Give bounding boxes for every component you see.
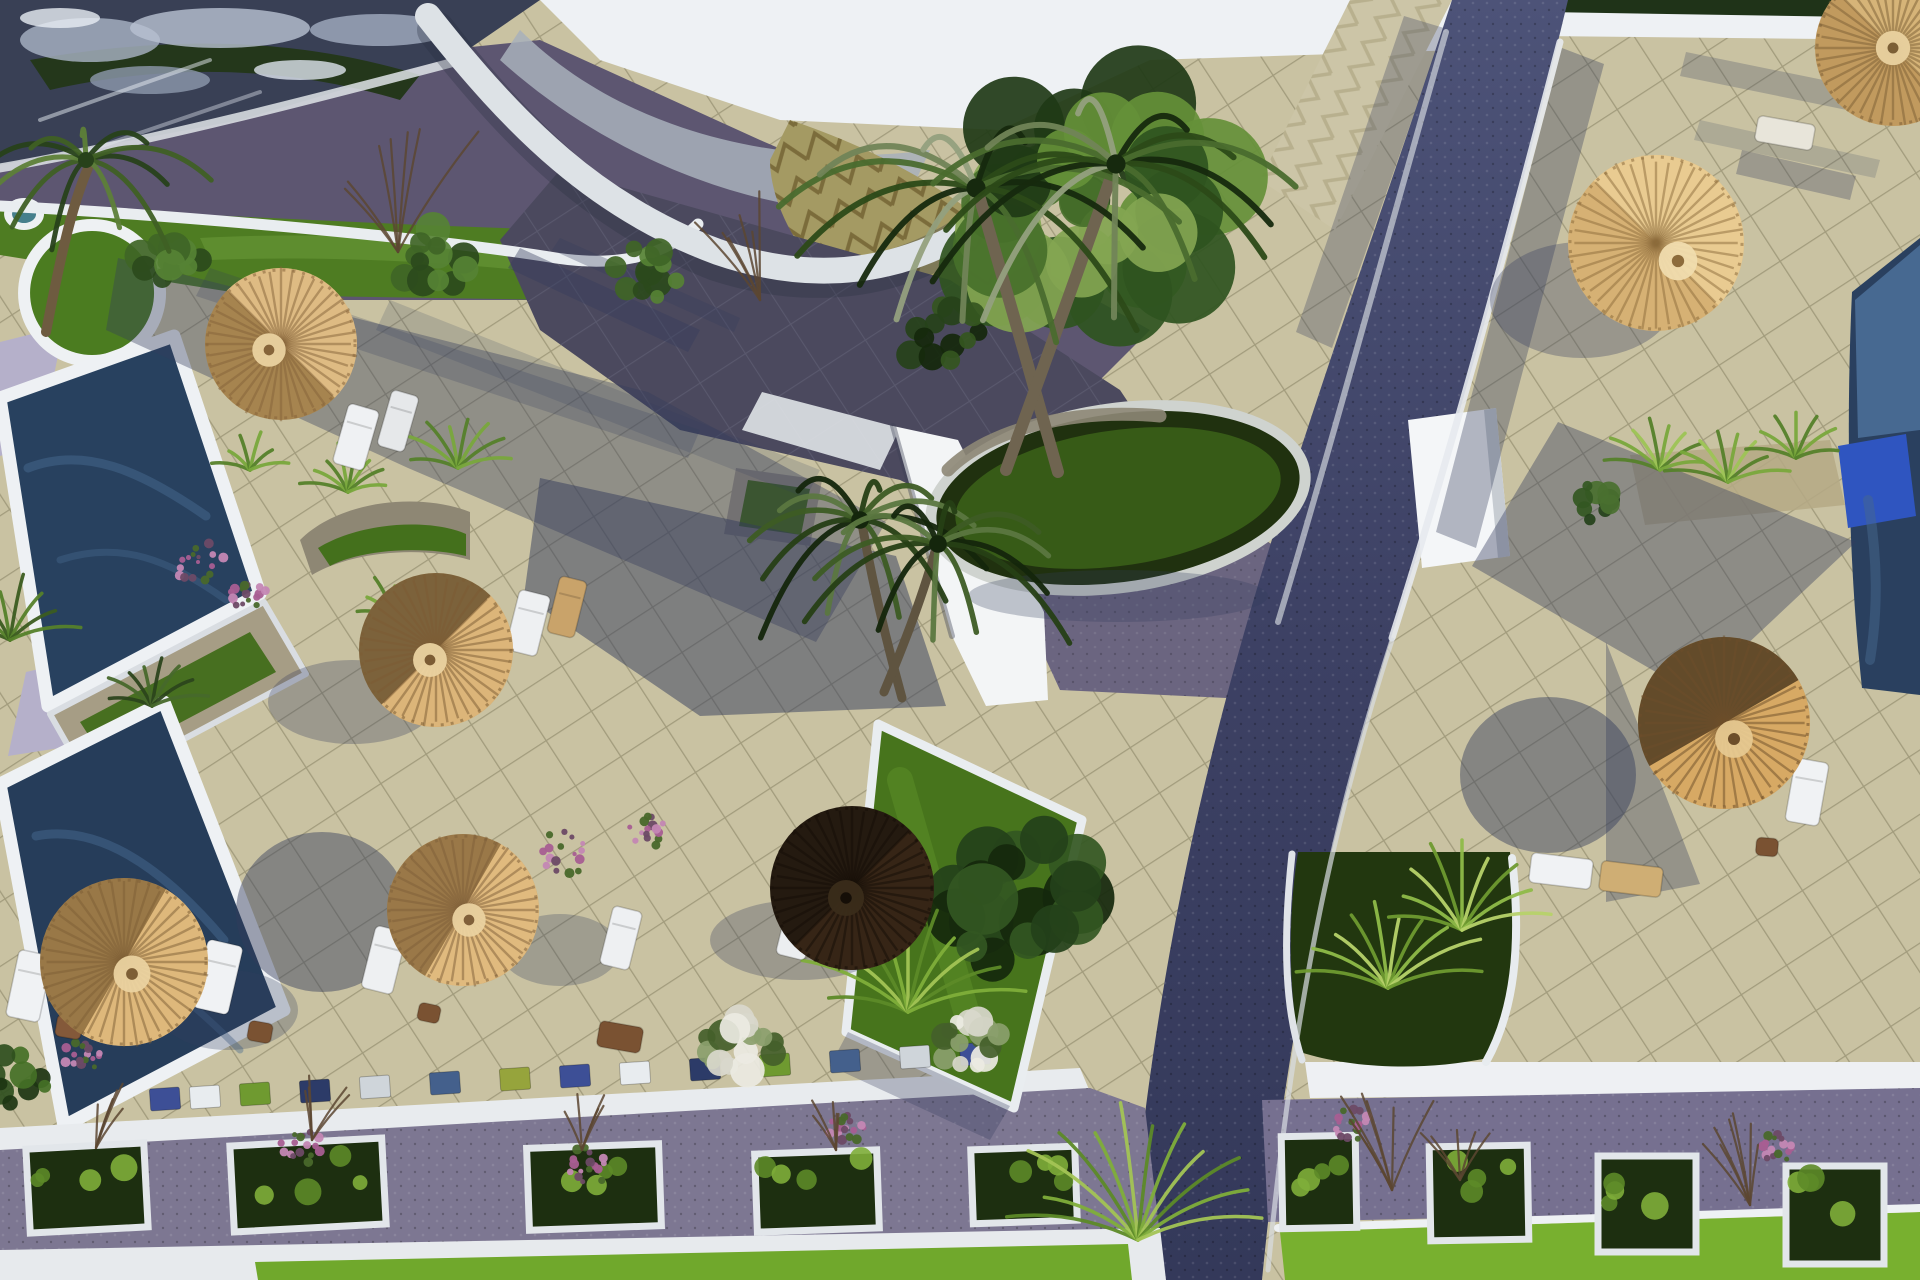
bin bbox=[899, 1045, 930, 1069]
bin bbox=[559, 1064, 590, 1088]
planter-box bbox=[230, 1138, 386, 1232]
sun-lounger bbox=[1528, 852, 1593, 889]
planter-center-shadow bbox=[968, 570, 1268, 622]
bin bbox=[829, 1049, 860, 1073]
cloud-reflection bbox=[130, 8, 310, 48]
bin bbox=[429, 1071, 460, 1095]
cloud-reflection bbox=[20, 8, 100, 28]
aerial-render-image bbox=[0, 0, 1920, 1280]
sun-lounger bbox=[416, 1002, 441, 1024]
scene-canvas bbox=[0, 0, 1920, 1280]
planter-box bbox=[971, 1146, 1078, 1224]
planter-box bbox=[1281, 1135, 1357, 1228]
bin bbox=[619, 1061, 650, 1085]
planter-box bbox=[26, 1143, 148, 1233]
planter-box bbox=[1786, 1164, 1884, 1264]
planter-box bbox=[754, 1147, 880, 1233]
cloud-reflection bbox=[254, 60, 346, 80]
sun-lounger bbox=[1755, 837, 1778, 857]
bin bbox=[299, 1079, 330, 1103]
bin bbox=[239, 1082, 270, 1106]
planter-box bbox=[527, 1144, 662, 1231]
bin bbox=[149, 1087, 180, 1111]
bin bbox=[359, 1075, 390, 1099]
planter-box bbox=[1598, 1156, 1696, 1252]
sun-lounger bbox=[1598, 860, 1663, 897]
sun-lounger bbox=[246, 1020, 273, 1044]
bin bbox=[499, 1067, 530, 1091]
pool-float-blue bbox=[1838, 434, 1916, 528]
bin bbox=[189, 1085, 220, 1109]
